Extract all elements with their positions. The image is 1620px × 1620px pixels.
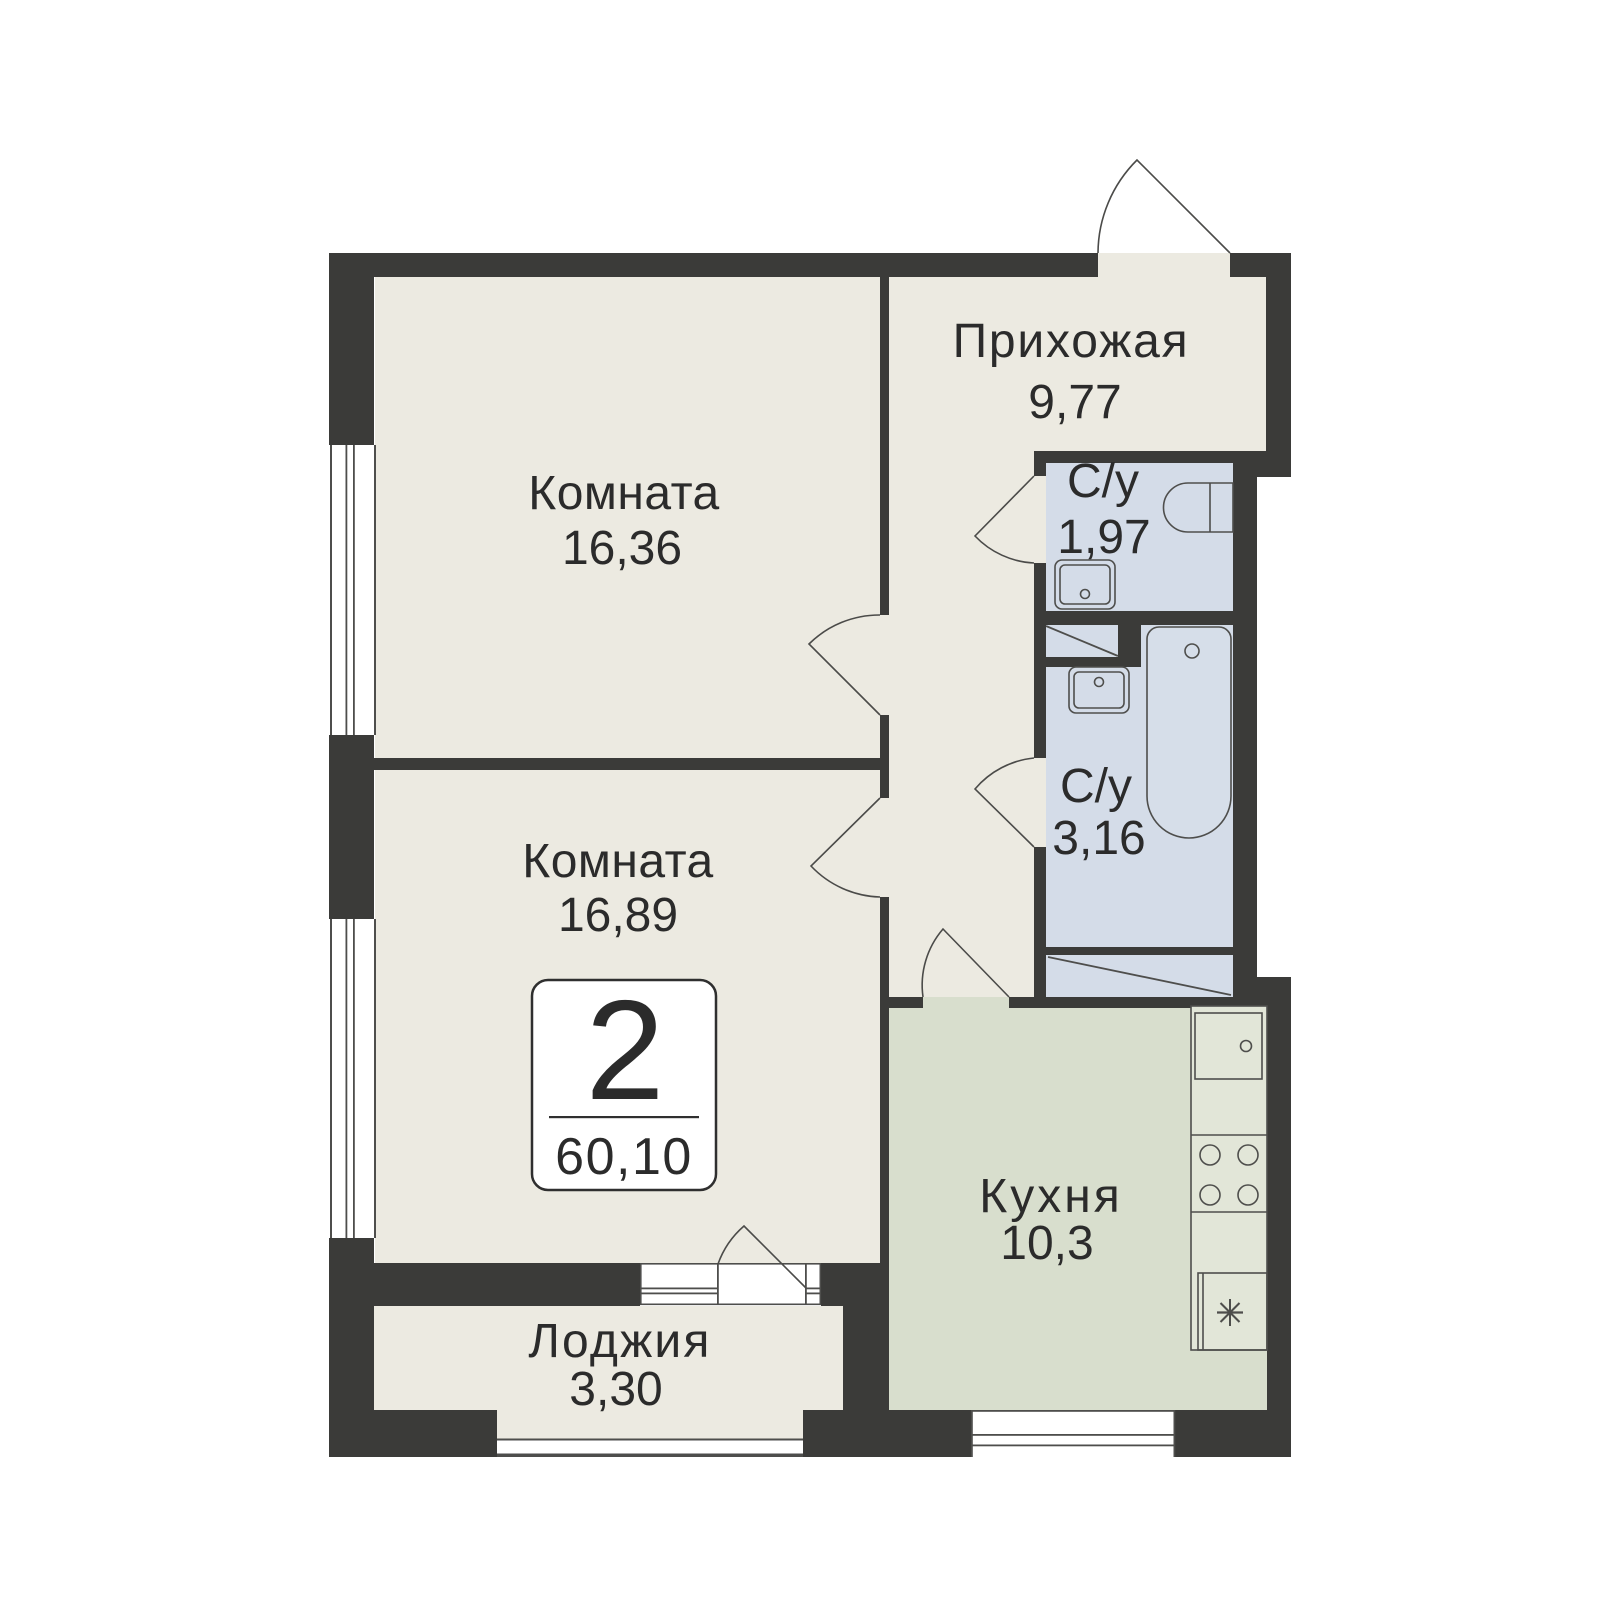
svg-text:16,89: 16,89 [558, 889, 678, 942]
svg-text:16,36: 16,36 [562, 522, 682, 575]
svg-text:2: 2 [586, 971, 665, 1130]
svg-text:Кухня: Кухня [979, 1170, 1122, 1223]
svg-text:1,97: 1,97 [1057, 511, 1150, 564]
svg-text:10,3: 10,3 [1000, 1217, 1093, 1270]
svg-text:60,10: 60,10 [555, 1128, 693, 1186]
svg-text:Лоджия: Лоджия [528, 1315, 711, 1368]
svg-text:С/у: С/у [1060, 760, 1132, 813]
svg-text:Комната: Комната [522, 835, 713, 888]
svg-text:С/у: С/у [1067, 455, 1139, 508]
svg-text:Прихожая: Прихожая [953, 315, 1190, 368]
svg-text:3,16: 3,16 [1052, 812, 1145, 865]
svg-text:3,30: 3,30 [569, 1363, 662, 1416]
svg-text:9,77: 9,77 [1028, 376, 1121, 429]
svg-text:Комната: Комната [528, 467, 719, 520]
